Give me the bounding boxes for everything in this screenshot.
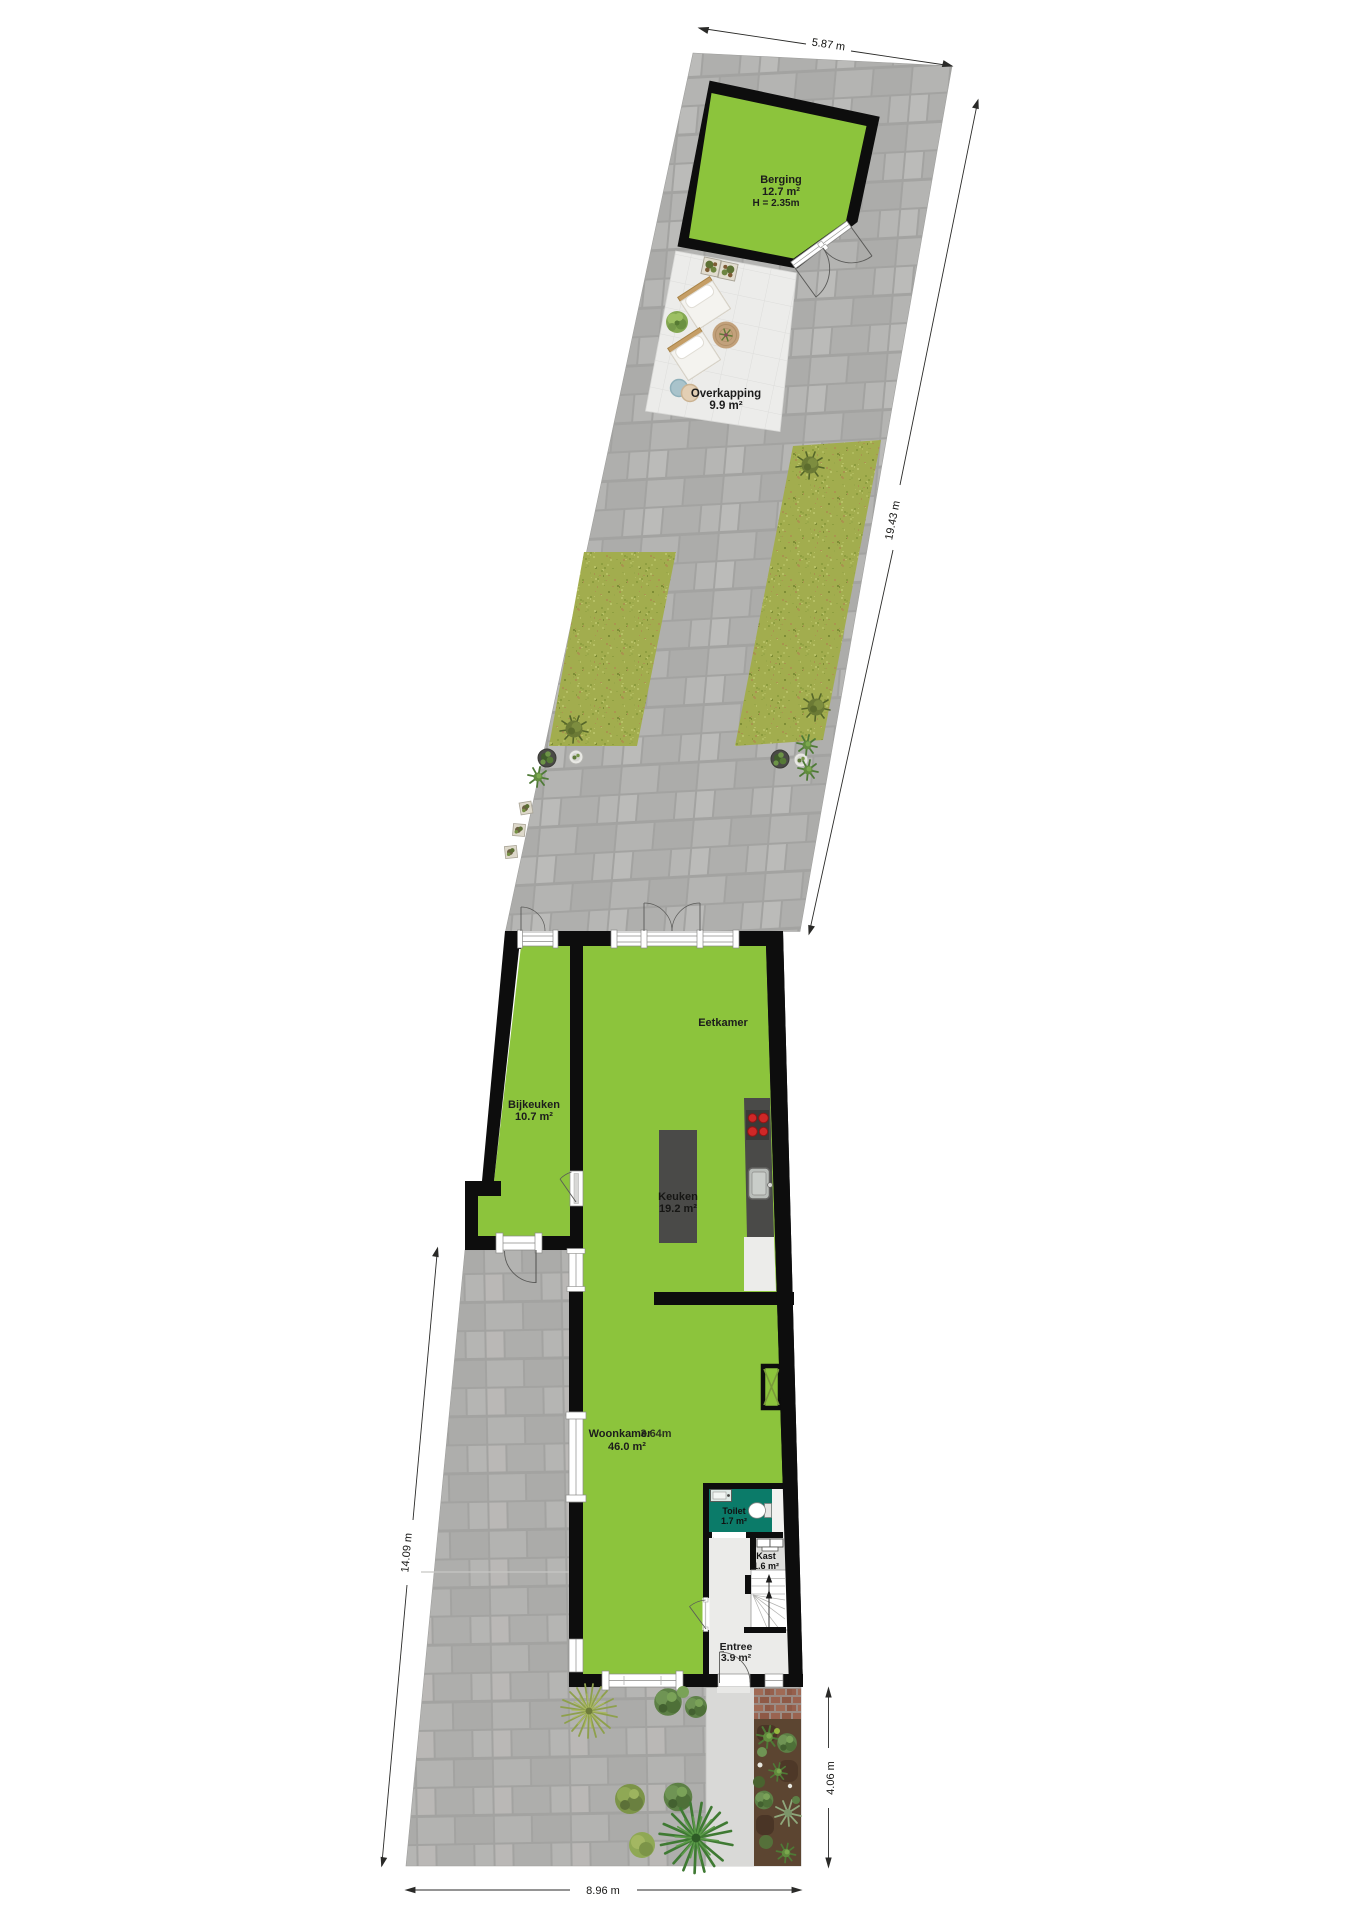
svg-text:Overkapping: Overkapping — [691, 388, 761, 400]
svg-text:4.06 m: 4.06 m — [825, 1761, 837, 1795]
svg-text:8.96 m: 8.96 m — [586, 1885, 620, 1897]
svg-text:H = 2.35m: H = 2.35m — [753, 198, 800, 209]
svg-text:Eetkamer: Eetkamer — [698, 1017, 748, 1029]
svg-text:Bijkeuken: Bijkeuken — [508, 1099, 560, 1111]
svg-text:3.64m: 3.64m — [640, 1428, 671, 1440]
svg-text:1.6 m²: 1.6 m² — [753, 1561, 779, 1571]
svg-text:12.7 m²: 12.7 m² — [762, 186, 800, 198]
svg-text:9.9 m²: 9.9 m² — [709, 400, 742, 412]
svg-text:3.9 m²: 3.9 m² — [721, 1652, 752, 1664]
svg-text:46.0 m²: 46.0 m² — [608, 1441, 646, 1453]
svg-text:Toilet: Toilet — [722, 1506, 745, 1516]
svg-text:1.7 m²: 1.7 m² — [721, 1516, 747, 1526]
svg-text:19.2 m²: 19.2 m² — [659, 1203, 697, 1215]
svg-text:Keuken: Keuken — [658, 1191, 698, 1203]
svg-text:Berging: Berging — [760, 174, 802, 186]
svg-text:10.7 m²: 10.7 m² — [515, 1111, 553, 1123]
svg-text:Kast: Kast — [756, 1551, 776, 1561]
